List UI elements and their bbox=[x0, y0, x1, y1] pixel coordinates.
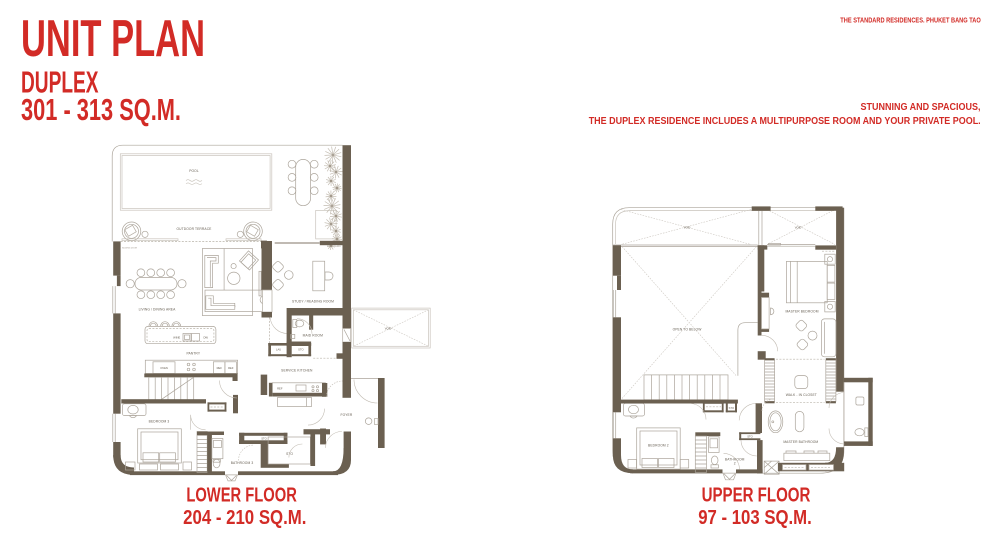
svg-text:THE STANDARD RESIDENCES. PHUKE: THE STANDARD RESIDENCES. PHUKET BANG TAO bbox=[840, 18, 981, 25]
svg-text:2: 2 bbox=[734, 462, 736, 466]
svg-text:OUTDOOR TERRACE: OUTDOOR TERRACE bbox=[177, 227, 213, 231]
svg-text:REF: REF bbox=[228, 366, 234, 370]
svg-text:OPEN TO BELOW: OPEN TO BELOW bbox=[673, 327, 703, 331]
svg-text:MAID ROOM: MAID ROOM bbox=[303, 334, 323, 338]
svg-text:UNIT PLAN: UNIT PLAN bbox=[21, 10, 205, 68]
svg-text:WALK - IN CLOSET: WALK - IN CLOSET bbox=[786, 393, 817, 397]
svg-text:MASTER BATHROOM: MASTER BATHROOM bbox=[783, 440, 818, 444]
svg-text:UPPER FLOOR: UPPER FLOOR bbox=[702, 485, 811, 507]
svg-text:REF: REF bbox=[217, 366, 223, 370]
svg-text:VOID: VOID bbox=[684, 226, 691, 230]
svg-text:LAU: LAU bbox=[276, 348, 281, 352]
svg-text:LOWER FLOOR: LOWER FLOOR bbox=[186, 485, 297, 507]
svg-text:WINE: WINE bbox=[173, 335, 180, 339]
svg-text:OVEN: OVEN bbox=[160, 366, 168, 370]
svg-text:POOL: POOL bbox=[189, 169, 199, 173]
svg-text:STUDY / READING ROOM: STUDY / READING ROOM bbox=[292, 299, 334, 303]
svg-text:204 - 210 SQ.M.: 204 - 210 SQ.M. bbox=[183, 507, 306, 529]
svg-text:SLIDING DOOR: SLIDING DOOR bbox=[122, 247, 138, 249]
svg-text:DW: DW bbox=[203, 335, 208, 339]
svg-text:STO: STO bbox=[298, 348, 303, 352]
svg-text:FIXED GLASS: FIXED GLASS bbox=[327, 245, 341, 248]
svg-text:FOYER: FOYER bbox=[340, 413, 352, 417]
svg-text:STO: STO bbox=[729, 406, 734, 410]
svg-text:STO: STO bbox=[747, 434, 752, 438]
svg-text:VOID: VOID bbox=[385, 327, 392, 331]
svg-text:97 - 103 SQ.M.: 97 - 103 SQ.M. bbox=[698, 507, 812, 529]
svg-text:301 - 313 SQ.M.: 301 - 313 SQ.M. bbox=[21, 92, 181, 127]
svg-text:MASTER BEDROOM: MASTER BEDROOM bbox=[785, 309, 818, 313]
svg-text:BATHROOM 3: BATHROOM 3 bbox=[231, 461, 254, 465]
svg-text:BEDROOM 3: BEDROOM 3 bbox=[149, 420, 170, 424]
svg-text:BEDROOM 2: BEDROOM 2 bbox=[648, 444, 669, 448]
svg-text:STUNNING AND SPACIOUS,: STUNNING AND SPACIOUS, bbox=[861, 101, 981, 113]
svg-text:STO: STO bbox=[261, 436, 266, 440]
svg-text:SERVICE KITCHEN: SERVICE KITCHEN bbox=[281, 368, 313, 372]
svg-text:VOID: VOID bbox=[795, 226, 802, 230]
svg-text:REF: REF bbox=[277, 387, 283, 391]
svg-text:LIVING / DINING AREA: LIVING / DINING AREA bbox=[139, 308, 177, 312]
svg-text:PANTRY: PANTRY bbox=[186, 352, 200, 356]
svg-text:THE DUPLEX RESIDENCE INCLUDES: THE DUPLEX RESIDENCE INCLUDES A MULTIPUR… bbox=[589, 115, 981, 127]
